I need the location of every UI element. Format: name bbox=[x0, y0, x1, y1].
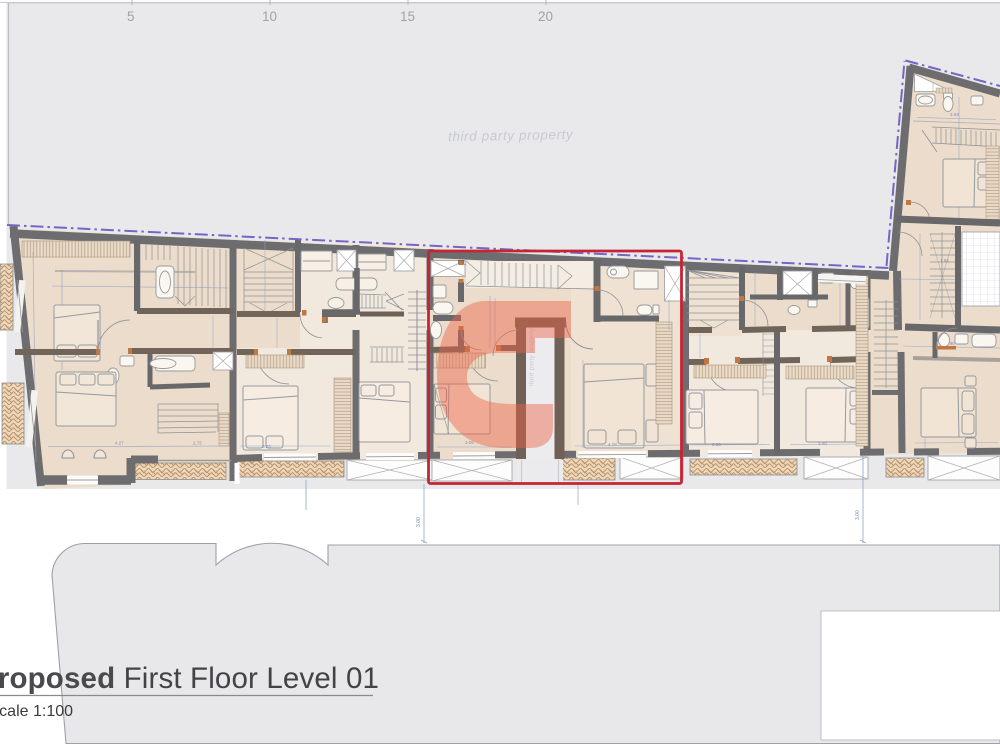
svg-text:3.03: 3.03 bbox=[950, 112, 959, 117]
svg-text:third party property: third party property bbox=[448, 127, 574, 144]
svg-text:2.72: 2.72 bbox=[193, 441, 202, 446]
svg-text:10: 10 bbox=[262, 9, 277, 24]
svg-text:3.23: 3.23 bbox=[712, 442, 721, 447]
svg-text:1.94: 1.94 bbox=[940, 258, 949, 263]
svg-text:3.23: 3.23 bbox=[262, 444, 271, 449]
svg-text:5: 5 bbox=[127, 9, 135, 24]
svg-text:Proposed First Floor Level 01: Proposed First Floor Level 01 bbox=[0, 662, 379, 695]
svg-text:3.00: 3.00 bbox=[855, 510, 861, 520]
svg-text:4.28: 4.28 bbox=[608, 442, 617, 447]
svg-text:20: 20 bbox=[538, 9, 553, 24]
svg-text:3.00: 3.00 bbox=[416, 517, 422, 527]
svg-text:Scale 1:100: Scale 1:100 bbox=[0, 703, 73, 720]
svg-text:4.27: 4.27 bbox=[115, 441, 124, 446]
svg-text:3.40: 3.40 bbox=[818, 441, 827, 446]
svg-text:15: 15 bbox=[400, 9, 415, 24]
